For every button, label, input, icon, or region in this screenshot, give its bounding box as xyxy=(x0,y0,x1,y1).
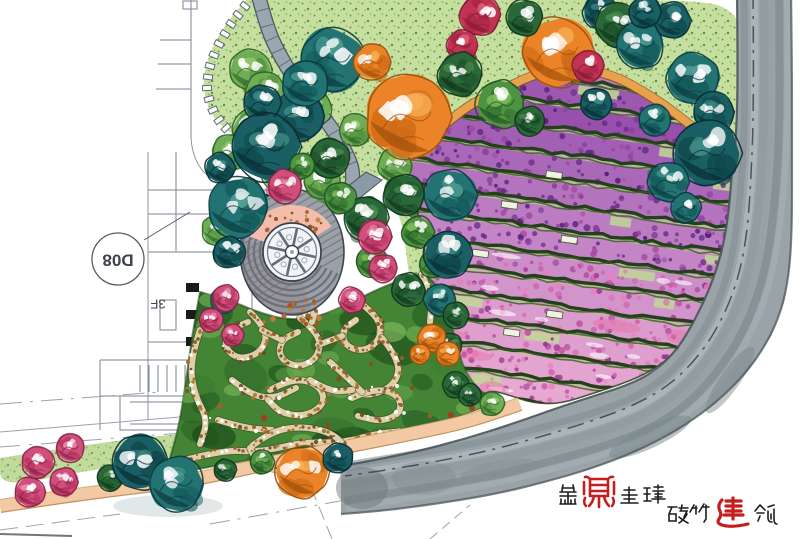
svg-text:3F: 3F xyxy=(150,297,165,312)
svg-text:D08: D08 xyxy=(102,251,133,270)
